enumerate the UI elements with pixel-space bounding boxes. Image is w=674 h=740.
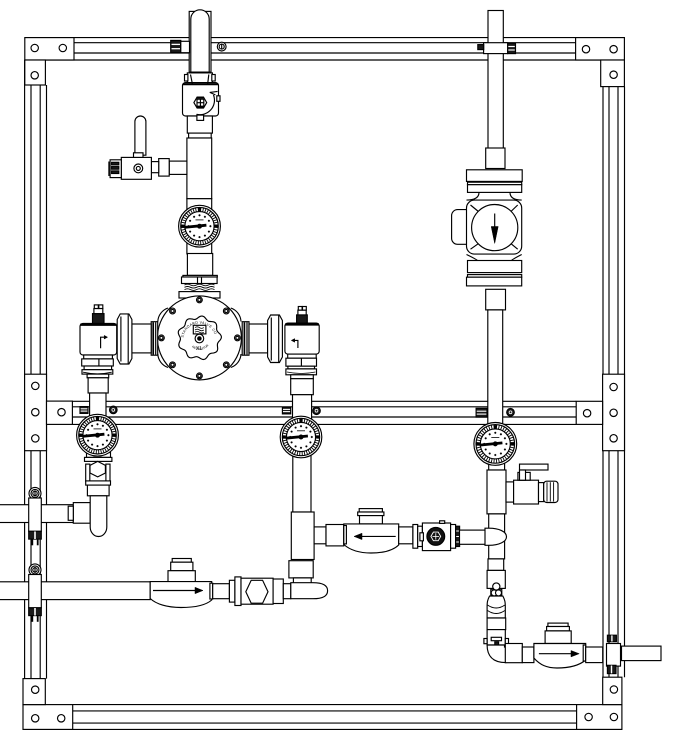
svg-text:XL: XL <box>196 346 203 352</box>
